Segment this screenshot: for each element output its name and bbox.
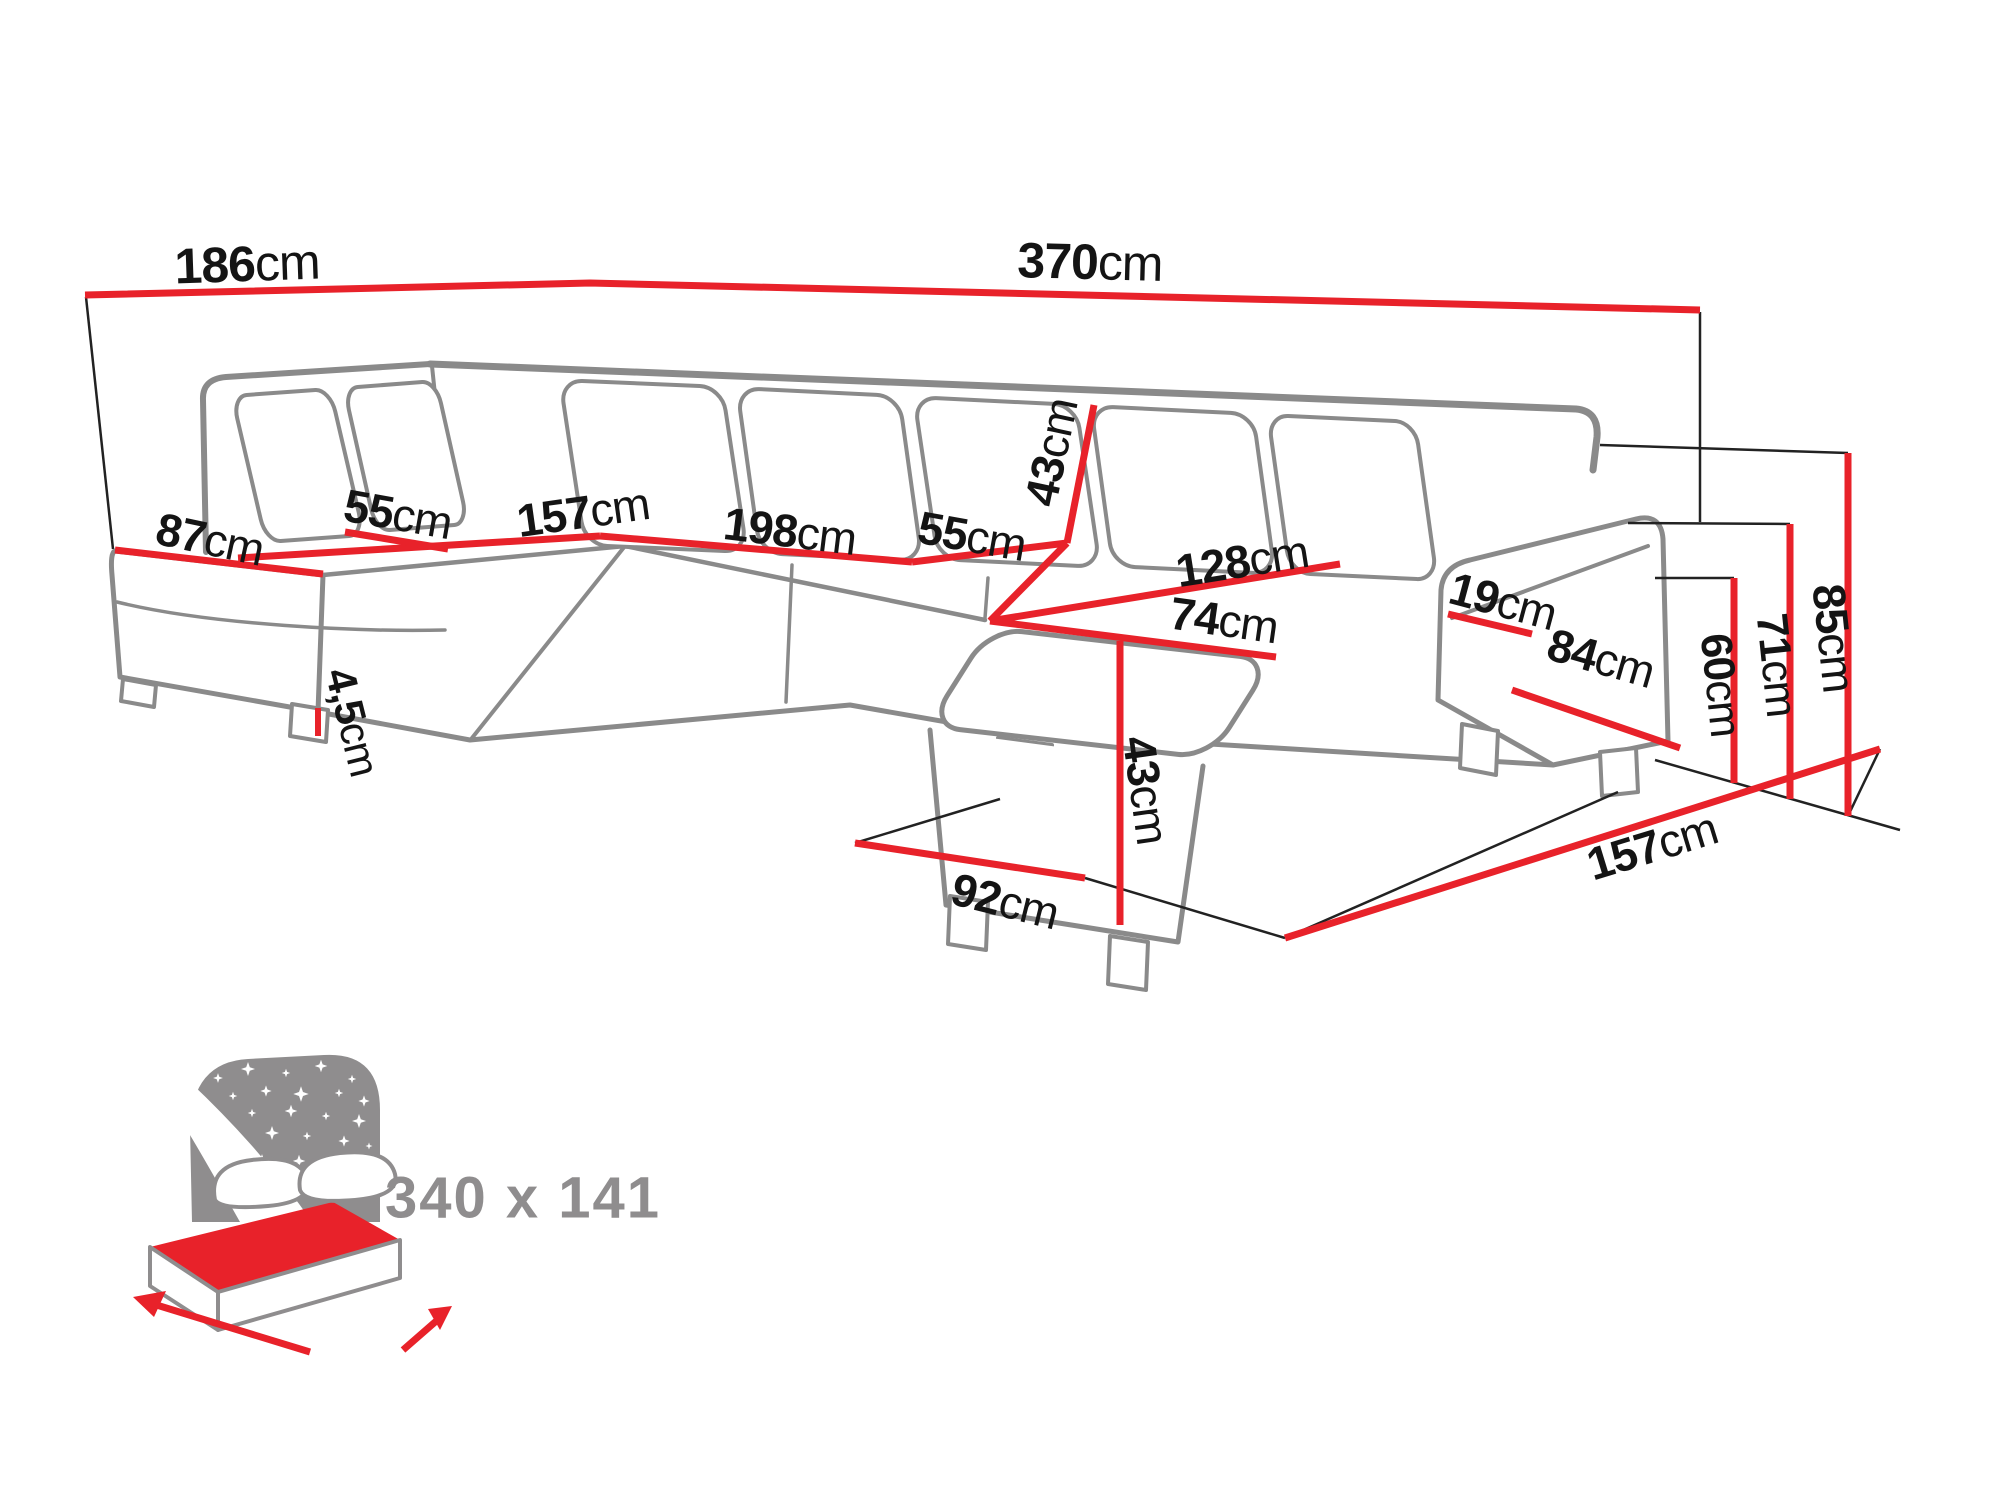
dim-label-armrest-height: 71cm — [1749, 611, 1804, 719]
dim-label-back-left-width: 186cm — [174, 236, 321, 291]
dim-label-seat-height: 60cm — [1693, 631, 1748, 739]
diagram-line-art — [0, 0, 2000, 1500]
dim-label-back-total-width: 370cm — [1017, 235, 1163, 289]
dim-label-total-height: 85cm — [1805, 582, 1862, 695]
sofa-dimension-diagram: 186cm 370cm 87cm 55cm 157cm 198cm 55cm 4… — [0, 0, 2000, 1500]
sleeping-area-size-label: 340 x 141 — [385, 1165, 661, 1232]
